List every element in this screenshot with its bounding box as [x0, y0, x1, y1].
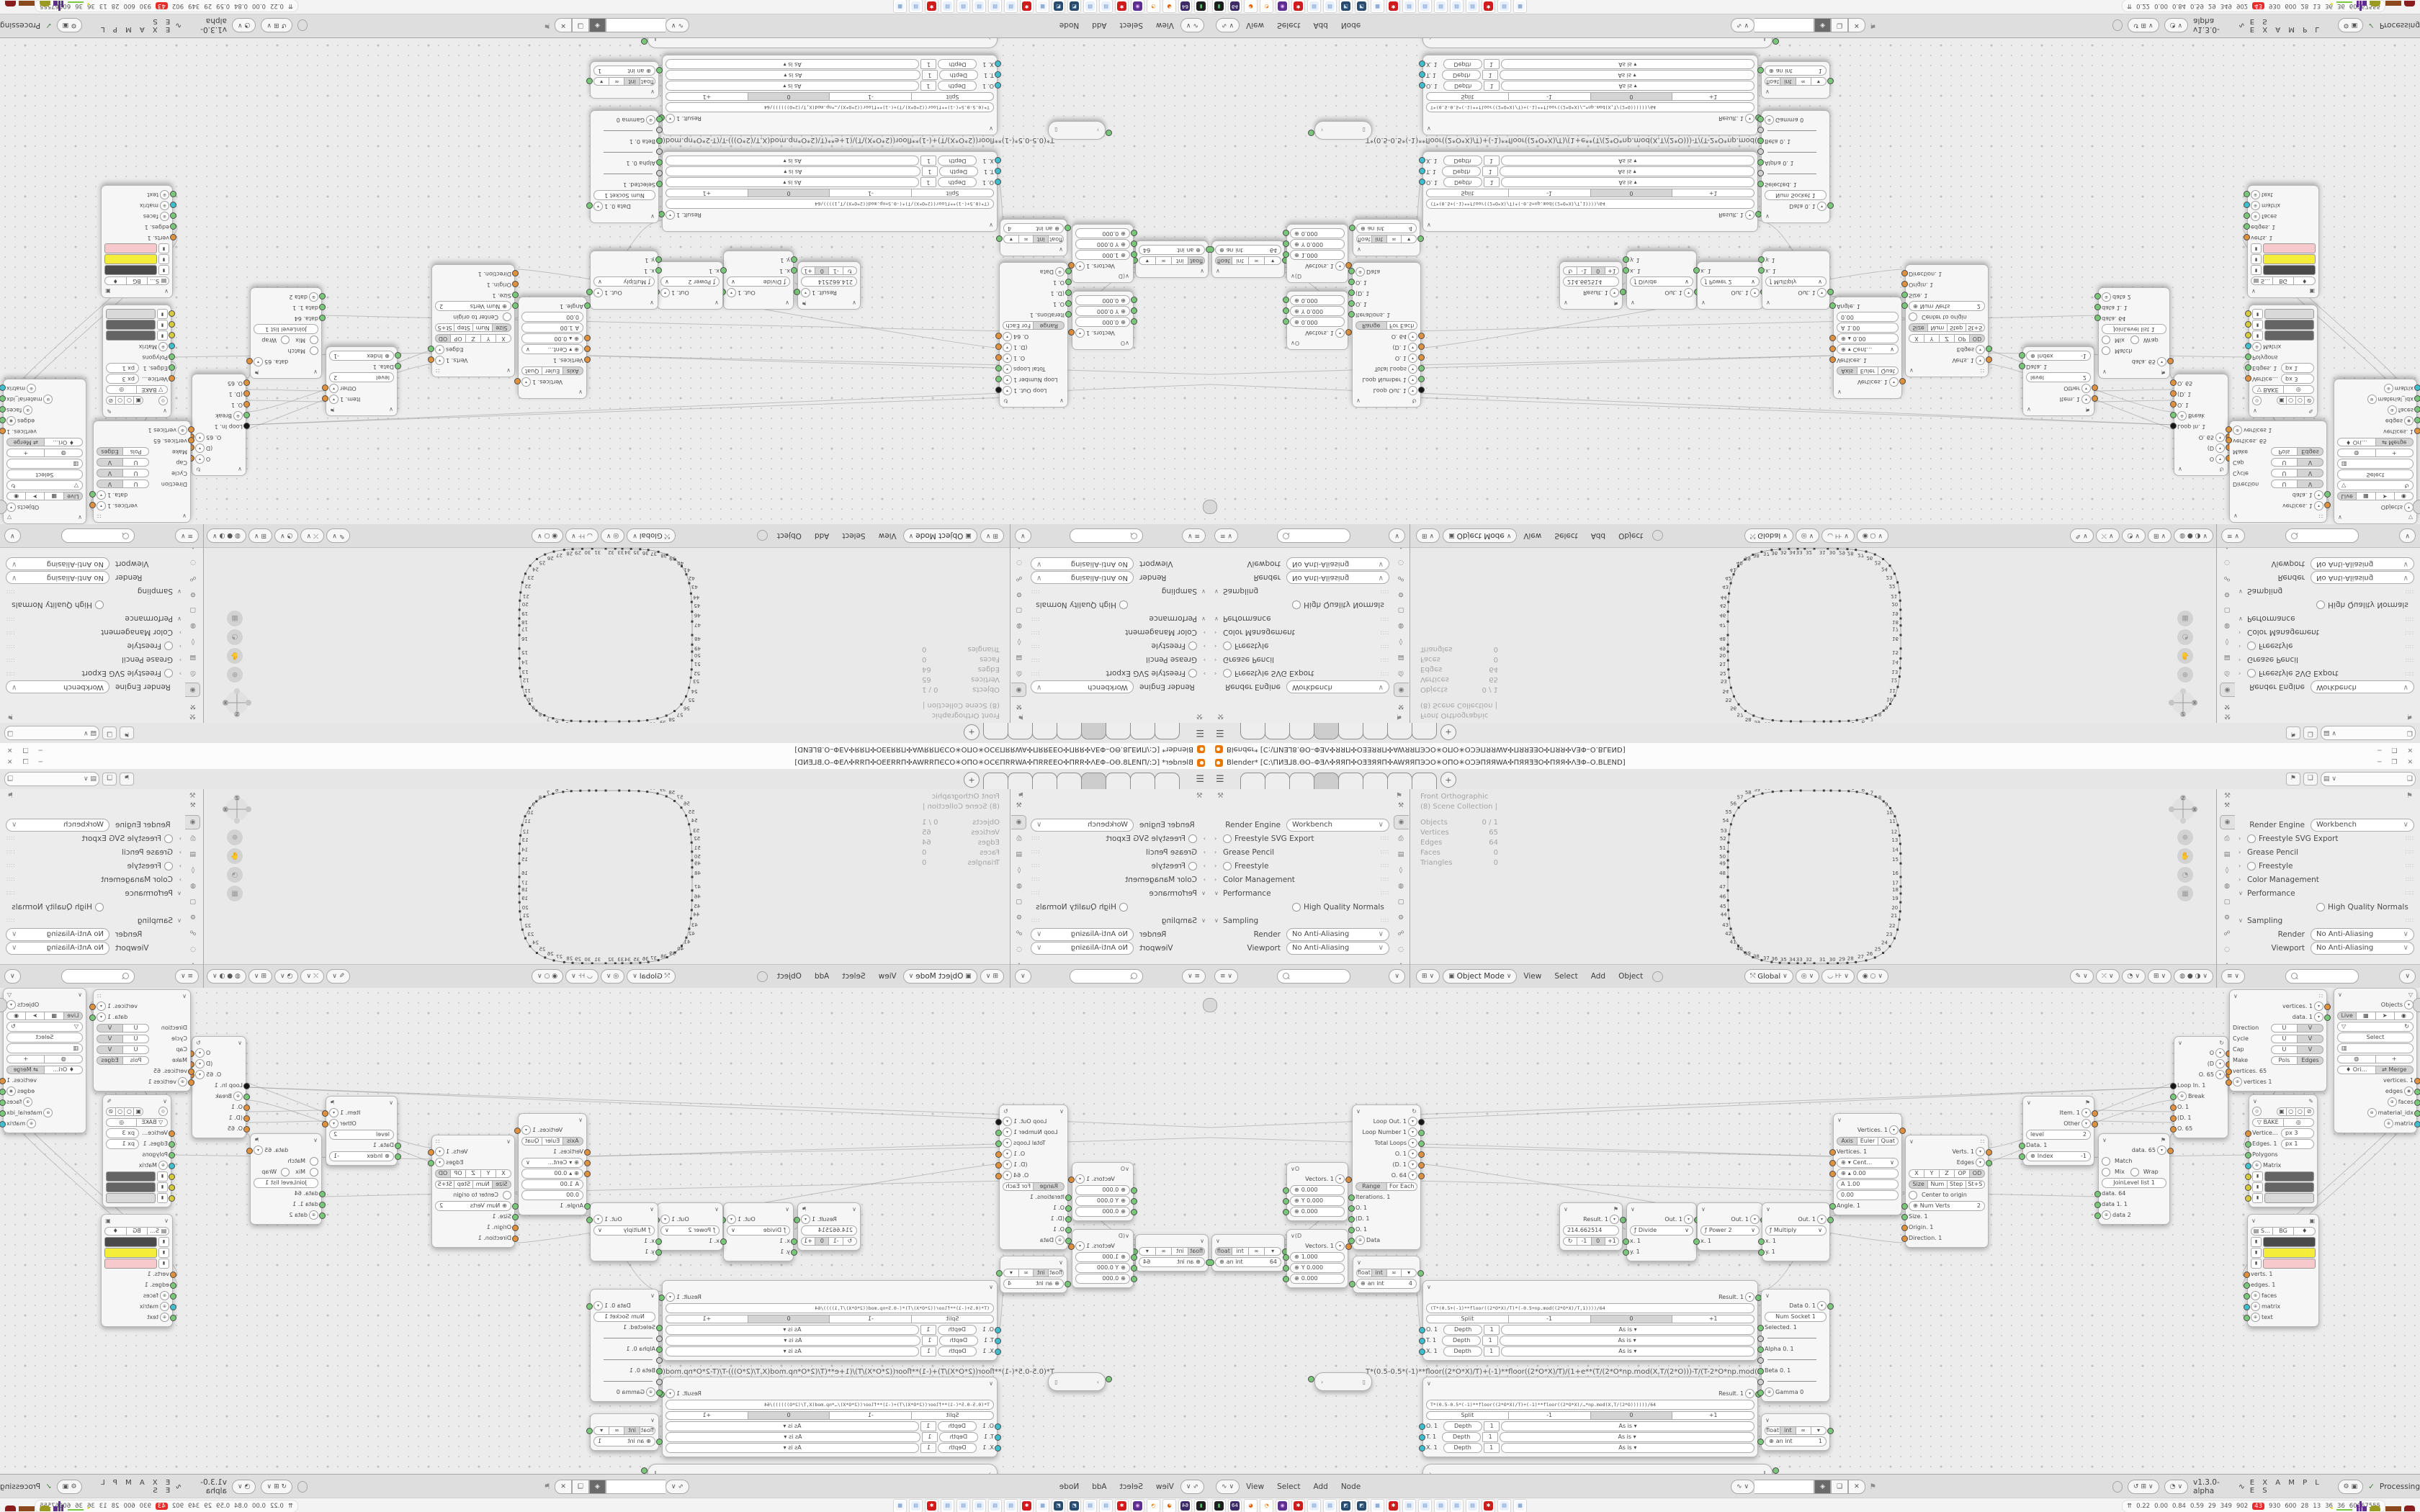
- socket[interactable]: [2244, 202, 2250, 208]
- taskbar-app-icon-19[interactable]: ▦: [893, 1499, 907, 1512]
- options-chevron-icon[interactable]: ∨: [1015, 969, 1031, 984]
- socket[interactable]: [1757, 1325, 1764, 1331]
- properties-filter-icon[interactable]: ⚒: [1196, 792, 1203, 800]
- pin-icon[interactable]: ⚑: [2286, 773, 2300, 786]
- properties-tab-5[interactable]: ◍: [2220, 880, 2234, 893]
- annotation-circle-icon[interactable]: [757, 531, 768, 541]
- socket[interactable]: [1773, 1467, 1779, 1474]
- socket[interactable]: [428, 346, 434, 352]
- node-editor[interactable]: ∨floatint∞▾⊕an int64∨OVectors. 1▾⊕0.000⊕…: [0, 38, 1210, 524]
- node-viewer-draw[interactable]: ∨✎◎▣○○⊘▽ BAKE◎Vertice…px 3Edges. 1px 1Po…: [102, 305, 171, 418]
- socket[interactable]: [584, 1160, 591, 1166]
- menu-view[interactable]: View: [1156, 22, 1174, 30]
- properties-tab-4[interactable]: ◊: [1394, 635, 1408, 648]
- overlay-group[interactable]: ◔∨: [2164, 1480, 2188, 1494]
- socket[interactable]: [2414, 395, 2420, 402]
- socket[interactable]: [428, 1149, 434, 1156]
- color-swatch[interactable]: [106, 320, 156, 330]
- annotation-circle-icon[interactable]: [757, 971, 768, 982]
- snap-toggle[interactable]: ◡ ⊦⊦∨: [565, 969, 599, 984]
- socket[interactable]: [1899, 378, 1906, 384]
- properties-tab-0[interactable]: ⚒: [186, 799, 200, 812]
- workspace-tab[interactable]: [1314, 773, 1339, 789]
- node-formula-1[interactable]: ∨Result. 1▾(T*(0.5+(-1)**floor((2*O*X)/T…: [662, 151, 998, 232]
- node-viewer-draw[interactable]: ∨✎◎▣○○⊘▽ BAKE◎Vertice…px 3Edges. 1px 1Po…: [102, 1094, 171, 1207]
- taskbar-app-icon-19[interactable]: ▦: [1513, 0, 1527, 14]
- viewport-aa-dropdown[interactable]: No Anti-Aliasing∨: [1031, 558, 1134, 571]
- viewlayer-name-input[interactable]: [15, 727, 81, 739]
- snap-group[interactable]: ↺⊞∨: [2128, 19, 2159, 33]
- socket[interactable]: [1623, 1249, 1629, 1256]
- color-swatch[interactable]: [2264, 310, 2314, 320]
- panel-header-sampling[interactable]: ∨Sampling∷∷: [1031, 585, 1206, 598]
- socket[interactable]: [1986, 1160, 1992, 1166]
- menu-node[interactable]: Node: [1341, 1482, 1361, 1491]
- render-aa-dropdown[interactable]: No Anti-Aliasing∨: [1031, 572, 1134, 585]
- node-formula-1[interactable]: ∨Result. 1▾(T*(0.5+(-1)**floor((2*O*X)/T…: [1422, 1280, 1758, 1361]
- menu-node[interactable]: Node: [1059, 22, 1079, 30]
- properties-tab-2[interactable]: ⎙: [1394, 832, 1408, 845]
- pin-icon[interactable]: ⚑: [120, 773, 134, 786]
- panel-header-color-management[interactable]: ›Color Management∷∷: [2238, 626, 2414, 639]
- menu-hamburger-icon[interactable]: ☰: [1196, 727, 1204, 738]
- properties-tab-1[interactable]: ◉: [1394, 683, 1409, 697]
- socket[interactable]: [1829, 335, 1836, 341]
- taskbar-app-icon-16[interactable]: ▤: [941, 0, 954, 14]
- panel-header-color-management[interactable]: ›Color Management∷∷: [1031, 873, 1206, 886]
- render-engine-dropdown[interactable]: Workbench∨: [1286, 681, 1389, 694]
- taskbar-app-icon-10[interactable]: ▦: [1036, 1499, 1049, 1512]
- properties-tab-0[interactable]: ⚒: [186, 700, 200, 713]
- socket[interactable]: [319, 1202, 326, 1208]
- properties-tab-9[interactable]: ◌: [1012, 943, 1026, 956]
- workspace-tab[interactable]: [1130, 773, 1155, 789]
- socket[interactable]: [2170, 1094, 2177, 1100]
- properties-tab-6[interactable]: ▢: [1012, 603, 1026, 616]
- annotation-circle-icon[interactable]: [297, 20, 308, 32]
- panel-header-sampling[interactable]: ∨Sampling∷∷: [6, 585, 181, 598]
- socket[interactable]: [1758, 1238, 1765, 1245]
- socket[interactable]: [1348, 268, 1355, 274]
- high-quality-normals-checkbox[interactable]: High Quality Normals: [6, 598, 181, 612]
- taskbar-app-icon-2[interactable]: ◕: [1162, 0, 1176, 14]
- socket[interactable]: [0, 417, 6, 423]
- menu-object[interactable]: Object: [777, 972, 802, 981]
- menu-select[interactable]: Select: [1554, 531, 1577, 540]
- taskbar-app-icon-13[interactable]: ▤: [1418, 1499, 1432, 1512]
- taskbar-app-icon-15[interactable]: ▤: [1450, 0, 1464, 14]
- panel-header-performance[interactable]: ∨Performance∷∷: [1031, 612, 1206, 626]
- socket[interactable]: [791, 1249, 797, 1256]
- node-math-power[interactable]: ∨Out. 1▾ƒPower 2∨x. 1: [1697, 1202, 1763, 1251]
- socket[interactable]: [794, 1217, 800, 1223]
- node-number-int-64[interactable]: ∨floatint∞▾⊕an int64: [1211, 1234, 1285, 1272]
- taskbar-app-icon-12[interactable]: ▤: [1402, 1499, 1416, 1512]
- socket[interactable]: [1418, 1162, 1425, 1169]
- node-formula-2[interactable]: T*(0.5-0.5*(-1)**floor((2*O*X)/T)+(-1)**…: [662, 55, 998, 135]
- socket[interactable]: [170, 234, 176, 240]
- workspace-tab[interactable]: [1008, 723, 1033, 739]
- overlay-group[interactable]: ◔∨: [2164, 19, 2188, 33]
- minimize-button[interactable]: ─: [2378, 759, 2381, 766]
- properties-tab-4[interactable]: ◊: [2220, 635, 2234, 648]
- panel-header-color-management[interactable]: ›Color Management∷∷: [1031, 626, 1206, 639]
- socket[interactable]: [512, 270, 519, 276]
- taskbar-app-icon-6[interactable]: ▤: [1099, 0, 1113, 14]
- copy-icon[interactable]: ❏: [102, 726, 117, 739]
- viewlayer-selector[interactable]: ▤ ∨ ❏: [4, 772, 99, 786]
- socket[interactable]: [243, 423, 250, 429]
- properties-tab-5[interactable]: ◍: [186, 619, 200, 632]
- socket[interactable]: [1418, 1151, 1425, 1158]
- pin-icon[interactable]: ⚑: [2406, 712, 2413, 720]
- node-vector-in-a[interactable]: ∨OVectors. 1▾⊕0.000⊕Y 0.000⊕0.000: [1286, 291, 1348, 350]
- menu-view[interactable]: View: [1156, 1482, 1174, 1491]
- node-math-power[interactable]: ∨Out. 1▾ƒPower 2∨x. 1: [1697, 261, 1763, 310]
- viewlayer-name-input[interactable]: [15, 773, 81, 785]
- render-engine-dropdown[interactable]: Workbench∨: [2311, 681, 2414, 694]
- viewlayer-selector[interactable]: ▤ ∨ ❏: [2321, 726, 2416, 740]
- tree-name-input[interactable]: [606, 1480, 665, 1494]
- socket[interactable]: [1419, 1445, 1425, 1452]
- examples-dropdown[interactable]: E X A M P L E S: [87, 1479, 170, 1495]
- socket[interactable]: [0, 1099, 6, 1106]
- socket[interactable]: [2244, 191, 2250, 197]
- socket[interactable]: [1901, 281, 1908, 287]
- socket[interactable]: [2244, 1293, 2250, 1300]
- socket[interactable]: [1757, 1390, 1764, 1396]
- socket[interactable]: [1068, 1243, 1075, 1250]
- socket[interactable]: [395, 363, 401, 369]
- color-swatch[interactable]: [106, 331, 156, 341]
- socket[interactable]: [995, 71, 1001, 78]
- socket[interactable]: [2245, 1130, 2251, 1137]
- socket[interactable]: [995, 168, 1001, 174]
- socket[interactable]: [2092, 384, 2098, 391]
- socket[interactable]: [1773, 38, 1779, 45]
- menu-add[interactable]: Add: [1313, 22, 1327, 30]
- properties-tab-8[interactable]: ☍: [2220, 572, 2234, 585]
- orientation-dropdown[interactable]: ⤲ Global∨: [1744, 528, 1793, 543]
- socket[interactable]: [322, 395, 328, 402]
- socket[interactable]: [641, 38, 647, 45]
- copy-icon[interactable]: ❏: [572, 19, 589, 33]
- socket[interactable]: [0, 1110, 6, 1117]
- socket[interactable]: [1757, 1379, 1764, 1385]
- maximize-button[interactable]: ❒: [2391, 759, 2397, 766]
- socket[interactable]: [995, 179, 1001, 185]
- socket[interactable]: [1418, 343, 1425, 350]
- search-input[interactable]: [2285, 528, 2359, 543]
- socket[interactable]: [995, 1140, 1002, 1147]
- socket[interactable]: [791, 1238, 797, 1245]
- color-swatch[interactable]: [104, 266, 157, 276]
- workspace-tab[interactable]: [1106, 723, 1131, 739]
- panel-header-sampling[interactable]: ∨Sampling∷∷: [1031, 914, 1206, 927]
- workspace-tab[interactable]: [983, 723, 1008, 739]
- socket[interactable]: [655, 267, 662, 274]
- node-uv-connection[interactable]: ∨∷vertices. 1▾data. 1▾DirectionUVCycleUV…: [2229, 420, 2327, 523]
- socket[interactable]: [1131, 230, 1137, 236]
- properties-tab-3[interactable]: ▤: [2220, 651, 2234, 664]
- render-aa-dropdown[interactable]: No Anti-Aliasing∨: [1031, 928, 1134, 941]
- socket[interactable]: [2245, 1184, 2251, 1191]
- editor-type-button[interactable]: ∿∨: [1180, 1480, 1204, 1494]
- node-loop-out[interactable]: ∨↻O▾(D▾O. 65▾Loop In. 1⊕BreakO. 1(D. 1O.…: [192, 374, 246, 476]
- workspace-tab[interactable]: [1155, 723, 1180, 739]
- render-engine-dropdown[interactable]: Workbench∨: [6, 681, 109, 694]
- viewport-3d[interactable]: Front Orthographic(8) Scene Collection |…: [203, 789, 1010, 988]
- node-line[interactable]: ∨∷Verts. 1▾Edges▾XYZOPODSizeNumStepSt+SC…: [1905, 264, 1989, 377]
- properties-tab-1[interactable]: ◉: [2220, 683, 2235, 697]
- socket[interactable]: [319, 1212, 326, 1219]
- socket[interactable]: [1283, 230, 1289, 236]
- mode-dropdown[interactable]: ▣ Object Mode∨: [1443, 969, 1517, 984]
- socket[interactable]: [1827, 1428, 1834, 1434]
- socket[interactable]: [169, 343, 175, 349]
- socket[interactable]: [1829, 1203, 1836, 1210]
- socket[interactable]: [89, 502, 96, 508]
- socket[interactable]: [2324, 491, 2331, 498]
- node-vector-in-b[interactable]: ∨(DVectors. 1▾⊕1.000⊕Y 0.000⊕0.000: [1072, 224, 1134, 283]
- add-workspace-button[interactable]: +: [1440, 724, 1456, 740]
- panel-header-freestyle[interactable]: ›Freestyle∷∷: [1031, 859, 1206, 873]
- viewport-toggle-icon[interactable]: ◔ ∨: [274, 528, 298, 543]
- socket[interactable]: [1065, 300, 1072, 307]
- node-tree-selector[interactable]: ∿∨ ◈ ❏ ✕ ⚑: [544, 19, 689, 33]
- color-swatch[interactable]: [106, 1171, 156, 1182]
- socket[interactable]: [1418, 365, 1425, 372]
- editor-type-button[interactable]: ≡ ∨: [175, 528, 199, 543]
- taskbar-app-icon-10[interactable]: ▦: [1371, 0, 1384, 14]
- node-collapsed-a[interactable]: ›▯: [1314, 121, 1372, 140]
- close-button[interactable]: ✕: [7, 746, 13, 753]
- node-loop-in[interactable]: ∨↻Loop Out. 1▾Loop Number 1▾Total Loops▾…: [1352, 262, 1421, 408]
- taskbar-app-icon-11[interactable]: ✱: [1020, 1499, 1034, 1512]
- menu-object[interactable]: Object: [777, 531, 802, 540]
- viewport-toggle-icon[interactable]: ✎ ∨: [326, 528, 350, 543]
- properties-tab-0[interactable]: ⚒: [1394, 700, 1408, 713]
- socket[interactable]: [2092, 1110, 2098, 1117]
- node-viewer-bmesh[interactable]: ∨▣▤ S…BG♦▮▮▮verts. 1edges. 1⊕faces⊕matri…: [2247, 185, 2319, 298]
- panel-header-performance[interactable]: ∨Performance∷∷: [6, 886, 181, 900]
- socket[interactable]: [1827, 1217, 1834, 1223]
- node-line[interactable]: ∨∷Verts. 1▾Edges▾XYZOPODSizeNumStepSt+SC…: [431, 1135, 515, 1248]
- maximize-button[interactable]: ❒: [23, 746, 29, 753]
- socket[interactable]: [1131, 1209, 1137, 1215]
- socket[interactable]: [2094, 1191, 2101, 1197]
- unlink-icon[interactable]: ✕: [1848, 19, 1865, 33]
- socket[interactable]: [794, 289, 800, 295]
- socket[interactable]: [188, 437, 194, 444]
- viewport-toggle-icon[interactable]: ✎ ∨: [2070, 528, 2094, 543]
- node-math-multiply[interactable]: ∨Out. 1▾ƒMultiply∨x. 1y. 1: [590, 1202, 658, 1261]
- node-editor[interactable]: ∨floatint∞▾⊕an int64∨OVectors. 1▾⊕0.000⊕…: [1210, 988, 2420, 1474]
- settings-group[interactable]: ⚙▣: [2338, 1480, 2364, 1494]
- workspace-tab[interactable]: [983, 773, 1008, 789]
- color-swatch[interactable]: [2263, 1237, 2316, 1247]
- socket[interactable]: [656, 148, 663, 155]
- taskbar-app-icon-19[interactable]: ▦: [893, 0, 907, 14]
- sidebar-handle-left[interactable]: [1203, 998, 1210, 1012]
- socket[interactable]: [2094, 315, 2101, 321]
- viewport-toggle-icon[interactable]: ✎ ∨: [2070, 969, 2094, 984]
- socket[interactable]: [1827, 289, 1834, 295]
- node-number-int-4[interactable]: ∨floatint∞▾⊕an int4: [1000, 1256, 1067, 1293]
- socket[interactable]: [2245, 375, 2251, 382]
- socket[interactable]: [246, 1148, 253, 1154]
- socket[interactable]: [995, 1434, 1001, 1441]
- taskbar-app-icon-6[interactable]: ▤: [1307, 0, 1321, 14]
- taskbar-app-icon-10[interactable]: ▦: [1371, 1499, 1384, 1512]
- taskbar-app-icon-3[interactable]: ◔: [1260, 0, 1273, 14]
- menu-node[interactable]: Node: [1341, 22, 1361, 30]
- panel-header-grease-pencil[interactable]: ›Grease Pencil∷∷: [1214, 653, 1389, 667]
- socket[interactable]: [656, 1325, 663, 1331]
- node-math-multiply[interactable]: ∨Out. 1▾ƒMultiply∨x. 1y. 1: [1762, 1202, 1830, 1261]
- viewport-3d[interactable]: Front Orthographic(8) Scene Collection |…: [203, 524, 1010, 723]
- mode-dropdown[interactable]: ▣ Object Mode∨: [903, 528, 977, 543]
- node-collapsed-b[interactable]: ›‖: [1422, 38, 1773, 48]
- taskbar-app-icon-16[interactable]: ▤: [1466, 1499, 1479, 1512]
- node-number-int-4[interactable]: ∨floatint∞▾⊕an int4: [1000, 219, 1067, 256]
- socket[interactable]: [1348, 279, 1355, 285]
- examples-dropdown[interactable]: E X A M P L E S: [2250, 18, 2333, 34]
- node-vector-in-b[interactable]: ∨(DVectors. 1▾⊕1.000⊕Y 0.000⊕0.000: [1286, 224, 1348, 283]
- properties-tab-8[interactable]: ☍: [1012, 927, 1026, 940]
- socket[interactable]: [1419, 1434, 1425, 1441]
- node-data-switch[interactable]: ∨Data 0. 1▾Num Socket 1Selected. 1Alpha …: [1761, 1289, 1830, 1402]
- panel-header-freestyle[interactable]: ›Freestyle∷∷: [2238, 859, 2414, 873]
- socket[interactable]: [656, 138, 663, 144]
- socket[interactable]: [2167, 358, 2174, 364]
- panel-header-freestyle[interactable]: ›Freestyle∷∷: [2238, 639, 2414, 653]
- panel-header-performance[interactable]: ∨Performance∷∷: [1214, 886, 1389, 900]
- menu-add[interactable]: Add: [1591, 531, 1605, 540]
- properties-tab-4[interactable]: ◊: [1394, 864, 1408, 877]
- socket[interactable]: [169, 1184, 175, 1191]
- pivot-dropdown[interactable]: ◎∨: [1796, 528, 1819, 543]
- node-loop-in[interactable]: ∨↻Loop Out. 1▾Loop Number 1▾Total Loops▾…: [999, 262, 1068, 408]
- taskbar-app-icon-6[interactable]: ▤: [1099, 1499, 1113, 1512]
- editor-type-button[interactable]: ⊞∨: [1416, 528, 1440, 543]
- socket[interactable]: [1345, 1176, 1352, 1183]
- socket[interactable]: [2414, 406, 2420, 413]
- processing-toggle[interactable]: Processing: [0, 1482, 40, 1491]
- socket[interactable]: [584, 1171, 591, 1177]
- properties-tab-0[interactable]: ⚒: [1012, 799, 1026, 812]
- taskbar-app-icon-9[interactable]: ◩: [1355, 1499, 1368, 1512]
- properties-tab-7[interactable]: ⚙: [2220, 912, 2234, 924]
- color-swatch[interactable]: [2264, 1193, 2314, 1203]
- snap-toggle[interactable]: ◡ ⊦⊦∨: [1821, 969, 1855, 984]
- menu-view[interactable]: View: [1246, 22, 1264, 30]
- socket[interactable]: [1901, 270, 1908, 276]
- color-swatch[interactable]: [2263, 1259, 2316, 1269]
- panel-header-performance[interactable]: ∨Performance∷∷: [2238, 886, 2414, 900]
- annotation-circle-icon[interactable]: [1652, 971, 1663, 982]
- socket[interactable]: [2170, 423, 2177, 429]
- socket[interactable]: [1418, 1173, 1425, 1179]
- taskbar-app-icon-0[interactable]: ▮: [1212, 0, 1226, 14]
- node-uv-connection[interactable]: ∨∷vertices. 1▾data. 1▾DirectionUVCycleUV…: [93, 989, 191, 1092]
- socket[interactable]: [2414, 1099, 2420, 1106]
- socket[interactable]: [246, 358, 253, 364]
- socket[interactable]: [1419, 168, 1425, 174]
- pivot-dropdown[interactable]: ◎∨: [1796, 969, 1819, 984]
- properties-tab-7[interactable]: ⚙: [2220, 588, 2234, 600]
- render-aa-dropdown[interactable]: No Anti-Aliasing∨: [6, 928, 109, 941]
- workspace-tab[interactable]: [1081, 773, 1106, 789]
- properties-tab-6[interactable]: ▢: [186, 603, 200, 616]
- taskbar-app-icon-12[interactable]: ▤: [1402, 0, 1416, 14]
- properties-tab-5[interactable]: ◍: [2220, 619, 2234, 632]
- workspace-tab[interactable]: [1155, 773, 1180, 789]
- socket[interactable]: [995, 157, 1001, 163]
- viewport-toggle-icon[interactable]: ⊞ ∨: [248, 969, 272, 984]
- node-tree-selector[interactable]: ∿∨ ◈ ❏ ✕ ⚑: [544, 1480, 689, 1494]
- color-swatch[interactable]: [2263, 1248, 2316, 1258]
- viewport-toggle-icon[interactable]: ⊞ ∨: [2148, 528, 2172, 543]
- socket[interactable]: [586, 1303, 593, 1310]
- close-button[interactable]: ✕: [7, 759, 13, 766]
- copy-icon[interactable]: ❏: [102, 773, 117, 786]
- socket[interactable]: [1827, 78, 1834, 84]
- tree-name-input[interactable]: [1754, 1480, 1814, 1494]
- properties-tab-0[interactable]: ⚒: [2220, 799, 2234, 812]
- search-input[interactable]: [61, 528, 135, 543]
- properties-tab-8[interactable]: ☍: [1012, 572, 1026, 585]
- node-math-multiply[interactable]: ∨Out. 1▾ƒMultiply∨x. 1y. 1: [590, 251, 658, 310]
- taskbar-app-icon-17[interactable]: ✱: [925, 1499, 938, 1512]
- properties-tab-6[interactable]: ▢: [186, 896, 200, 909]
- properties-tab-9[interactable]: ◌: [2220, 556, 2234, 569]
- node-list-item[interactable]: ∨⚑Item. 1▾Other▾level2Data. 1⊕Index-1: [326, 346, 398, 416]
- menu-add[interactable]: Add: [815, 972, 829, 981]
- editor-type-button[interactable]: ∿∨: [1216, 19, 1240, 33]
- node-list-join[interactable]: ∨⚑data. 65▾MatchMixWrapJoinLevel list 1d…: [250, 287, 322, 379]
- color-swatch[interactable]: [2264, 331, 2314, 341]
- node-viewer-bmesh[interactable]: ∨▣▤ S…BG♦▮▮▮verts. 1edges. 1⊕faces⊕matri…: [101, 1214, 173, 1327]
- node-line[interactable]: ∨∷Verts. 1▾Edges▾XYZOPODSizeNumStepSt+SC…: [431, 264, 515, 377]
- socket[interactable]: [322, 384, 328, 391]
- socket[interactable]: [2324, 502, 2331, 508]
- unlink-icon[interactable]: ✕: [555, 19, 572, 33]
- socket[interactable]: [188, 1068, 194, 1075]
- taskbar-app-icon-8[interactable]: ◩: [1067, 1499, 1081, 1512]
- properties-tab-2[interactable]: ⎙: [1012, 832, 1026, 845]
- taskbar-app-icon-1[interactable]: 64: [1228, 1499, 1242, 1512]
- taskbar-app-icon-0[interactable]: ▮: [1212, 1499, 1226, 1512]
- node-rotate[interactable]: ∨Vertices. 1▾AxisEulerQuatVertices. 1⊕▾C…: [1833, 1113, 1902, 1215]
- socket[interactable]: [2414, 384, 2420, 391]
- properties-tab-7[interactable]: ⚙: [186, 588, 200, 600]
- socket[interactable]: [428, 1160, 434, 1166]
- properties-tab-2[interactable]: ⎙: [186, 667, 200, 680]
- node-collapsed-b[interactable]: ›‖: [1422, 1464, 1773, 1474]
- socket[interactable]: [1757, 1346, 1764, 1353]
- socket[interactable]: [243, 1126, 250, 1133]
- menu-select[interactable]: Select: [1120, 1482, 1143, 1491]
- node-collapsed-a[interactable]: ›▯: [1048, 121, 1106, 140]
- socket[interactable]: [1065, 1227, 1072, 1233]
- viewport-3d[interactable]: Front Orthographic(8) Scene Collection |…: [1410, 789, 2217, 988]
- socket[interactable]: [1757, 159, 1764, 166]
- viewlayer-selector[interactable]: ▤ ∨ ❏: [4, 726, 99, 740]
- socket[interactable]: [1131, 1276, 1137, 1282]
- socket[interactable]: [1283, 251, 1289, 258]
- menu-view[interactable]: View: [1246, 1482, 1264, 1491]
